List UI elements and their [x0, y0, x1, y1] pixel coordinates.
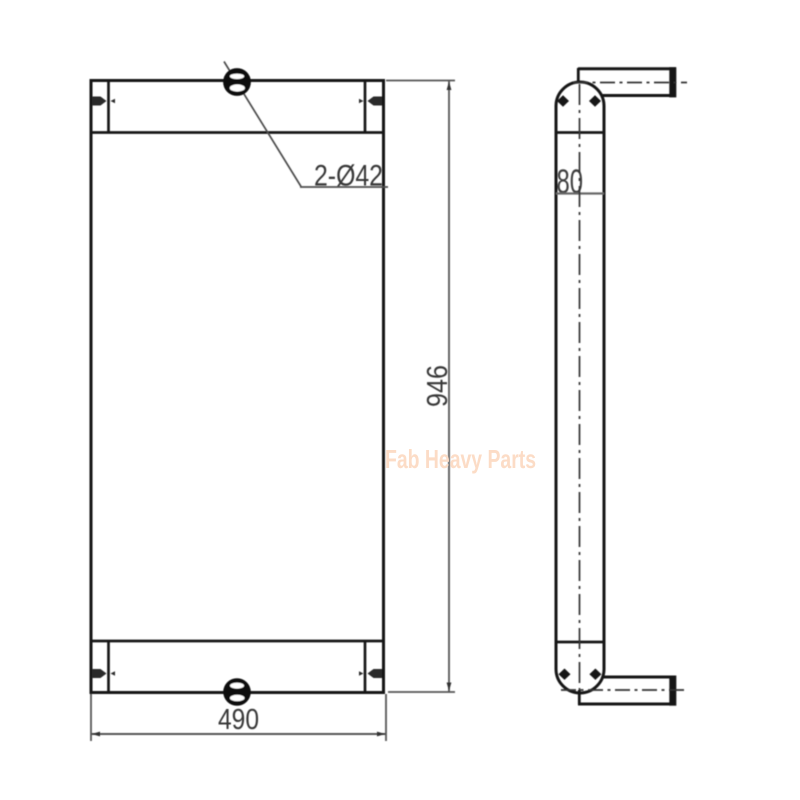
svg-text:Fab Heavy Parts: Fab Heavy Parts [385, 444, 536, 474]
svg-text:490: 490 [218, 704, 259, 736]
svg-text:946: 946 [422, 365, 454, 407]
svg-text:2-Ø42: 2-Ø42 [314, 160, 383, 193]
